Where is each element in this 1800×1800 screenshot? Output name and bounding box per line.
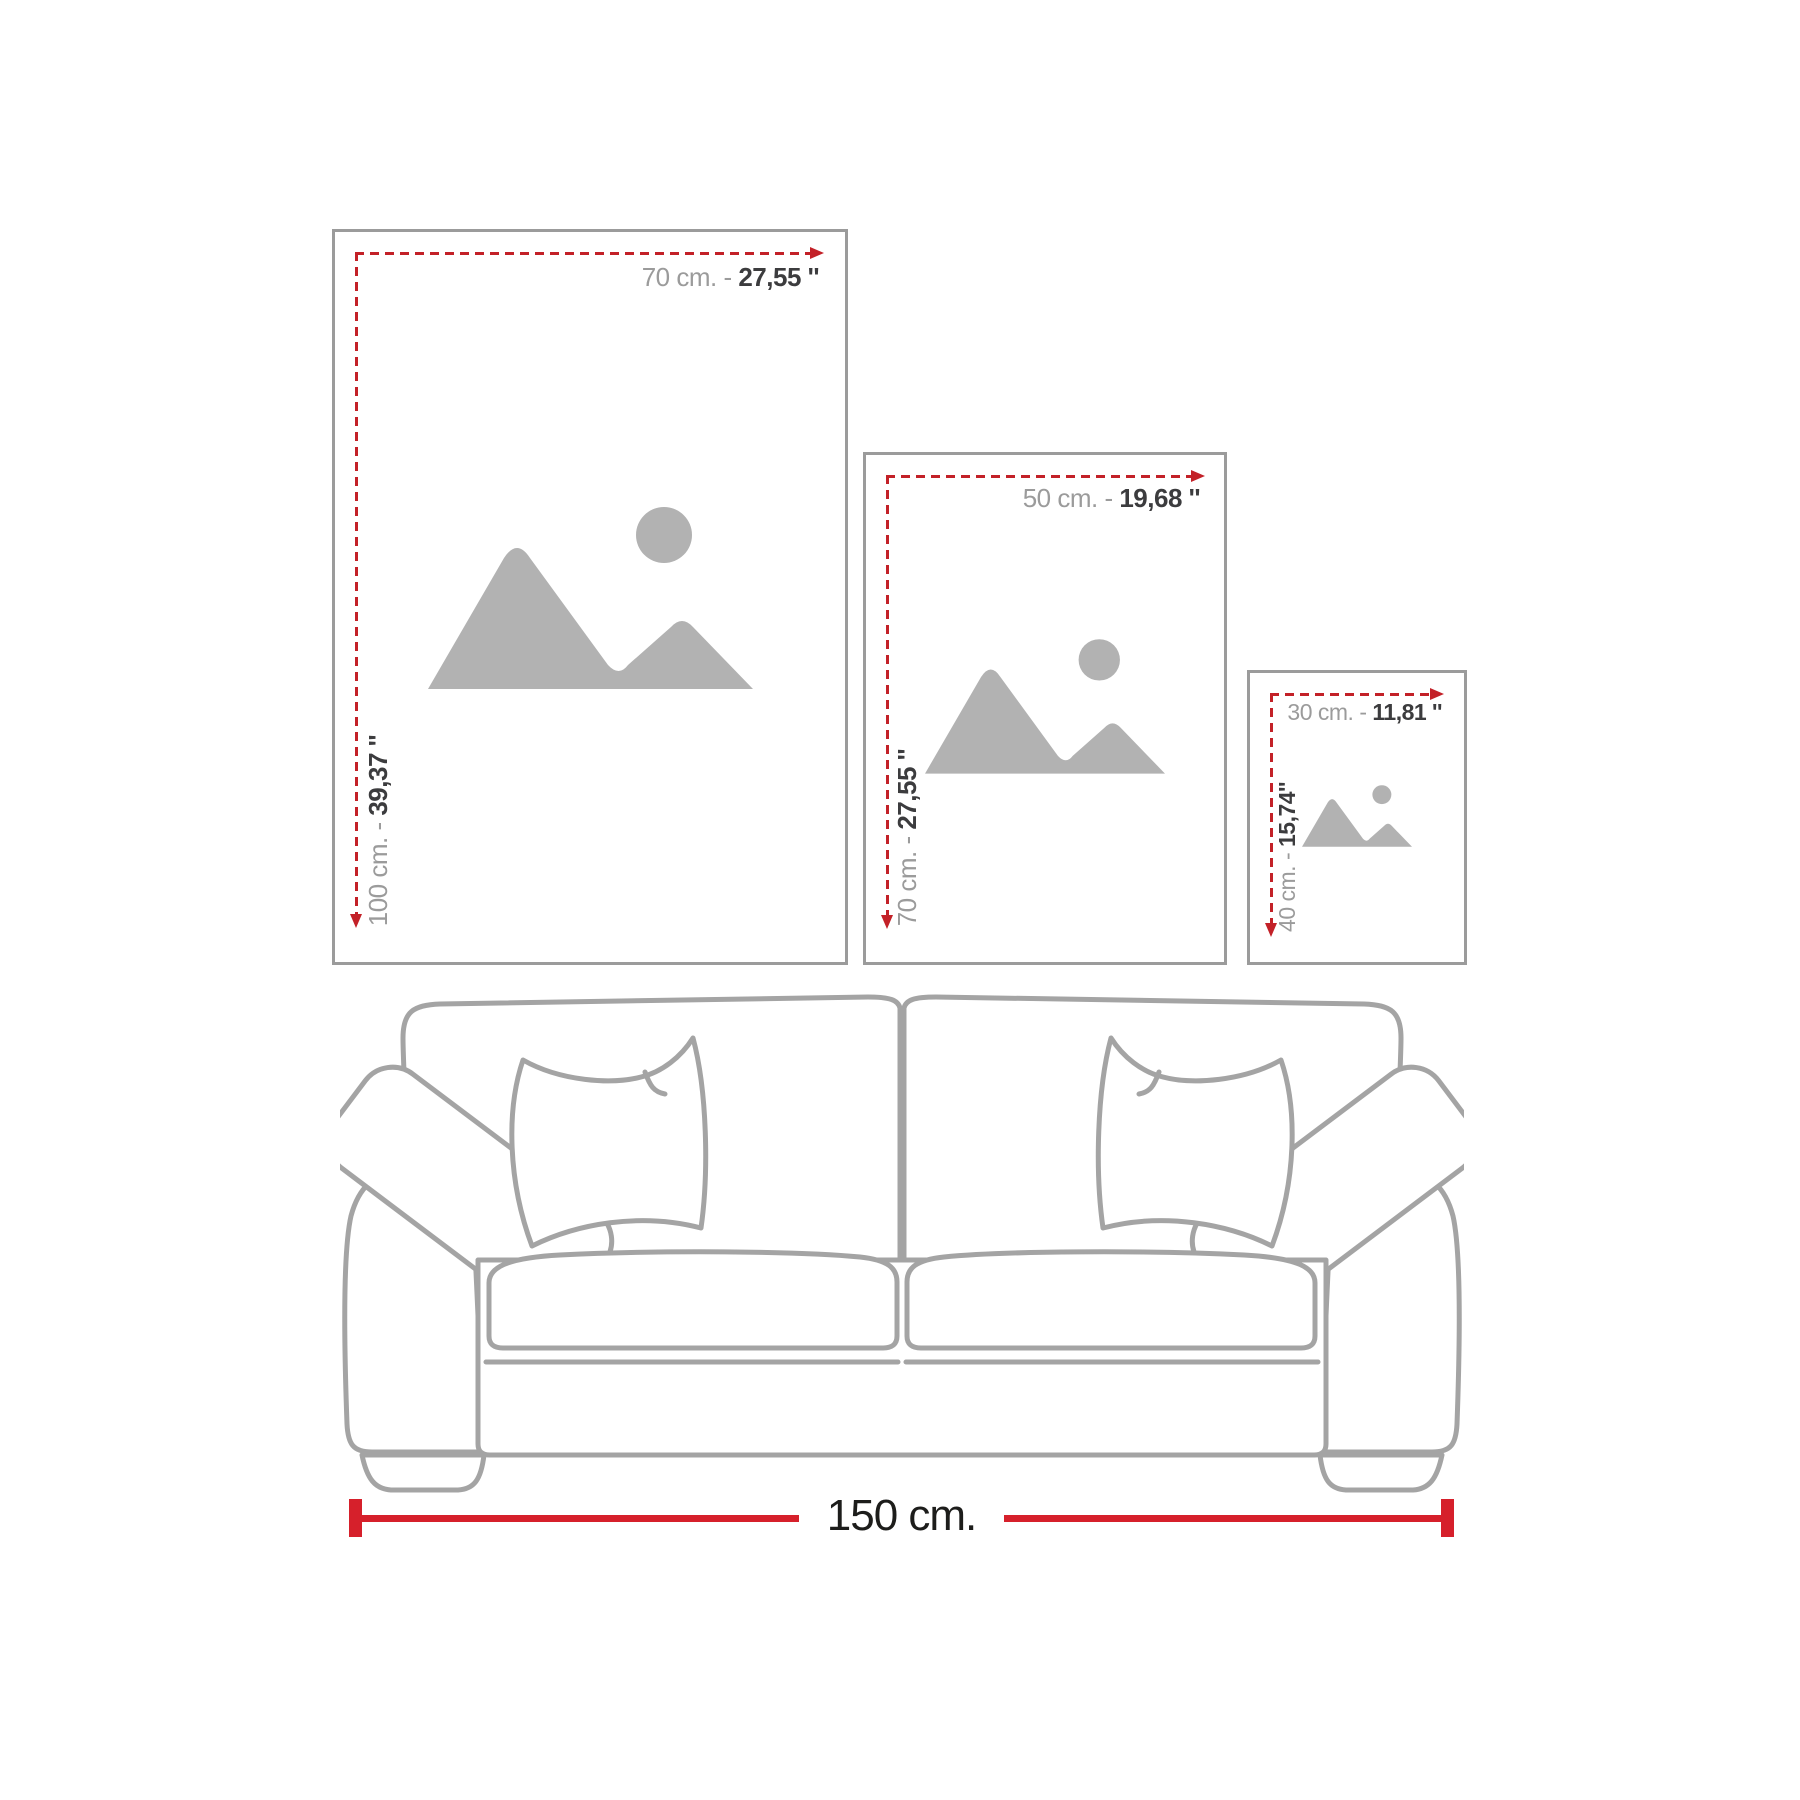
width-dimension-dashes <box>886 475 1191 478</box>
sofa-width-label: 150 cm. <box>827 1491 977 1545</box>
height-cm-value: 100 cm. - <box>363 815 393 926</box>
arrow-right-icon <box>1191 470 1205 482</box>
width-label: 70 cm. - 27,55 '' <box>642 262 819 293</box>
height-inch-value: 15,74'' <box>1274 782 1300 847</box>
sofa-seat-right <box>907 1252 1315 1348</box>
poster-frame-large: 70 cm. - 27,55 '' 100 cm. - 39,37 '' <box>332 229 848 965</box>
measure-end-cap-left <box>349 1499 362 1537</box>
image-placeholder-icon <box>1302 785 1412 848</box>
width-label: 30 cm. - 11,81 '' <box>1287 699 1442 726</box>
height-cm-value: 40 cm. - <box>1274 847 1300 932</box>
height-label: 70 cm. - 27,55 '' <box>892 749 923 926</box>
sofa-seat-left <box>489 1252 897 1348</box>
poster-frame-small: 30 cm. - 11,81 '' 40 cm. - 15,74'' <box>1247 670 1467 965</box>
sofa-illustration <box>340 993 1464 1503</box>
arrow-right-icon <box>810 247 824 259</box>
sofa-foot-left <box>362 1455 484 1490</box>
height-label: 100 cm. - 39,37 '' <box>363 735 394 926</box>
poster-frame-medium: 50 cm. - 19,68 '' 70 cm. - 27,55 '' <box>863 452 1227 965</box>
height-inch-value: 27,55 '' <box>892 749 922 830</box>
image-placeholder-icon <box>925 639 1165 776</box>
width-cm-value: 50 cm. - <box>1023 483 1120 513</box>
height-dimension-dashes <box>355 252 358 914</box>
height-dimension-dashes <box>886 475 889 915</box>
size-guide-canvas: 70 cm. - 27,55 '' 100 cm. - 39,37 '' 50 … <box>0 0 1800 1800</box>
arrow-down-icon <box>350 914 362 928</box>
sofa-width-measure: 150 cm. <box>349 1497 1454 1539</box>
height-dimension-dashes <box>1270 693 1273 923</box>
width-cm-value: 30 cm. - <box>1287 699 1372 725</box>
width-inch-value: 11,81 '' <box>1372 699 1442 725</box>
width-label: 50 cm. - 19,68 '' <box>1023 483 1200 514</box>
height-inch-value: 39,37 '' <box>363 735 393 816</box>
width-cm-value: 70 cm. - <box>642 262 739 292</box>
measure-line-left <box>362 1515 799 1522</box>
image-placeholder-icon <box>428 507 753 692</box>
width-dimension-dashes <box>355 252 810 255</box>
measure-end-cap-right <box>1441 1499 1454 1537</box>
height-label: 40 cm. - 15,74'' <box>1274 782 1301 932</box>
width-inch-value: 27,55 '' <box>738 262 819 292</box>
width-dimension-dashes <box>1270 693 1430 696</box>
width-inch-value: 19,68 '' <box>1119 483 1200 513</box>
measure-line-right <box>1004 1515 1441 1522</box>
sofa-foot-right <box>1320 1455 1442 1490</box>
height-cm-value: 70 cm. - <box>892 829 922 926</box>
